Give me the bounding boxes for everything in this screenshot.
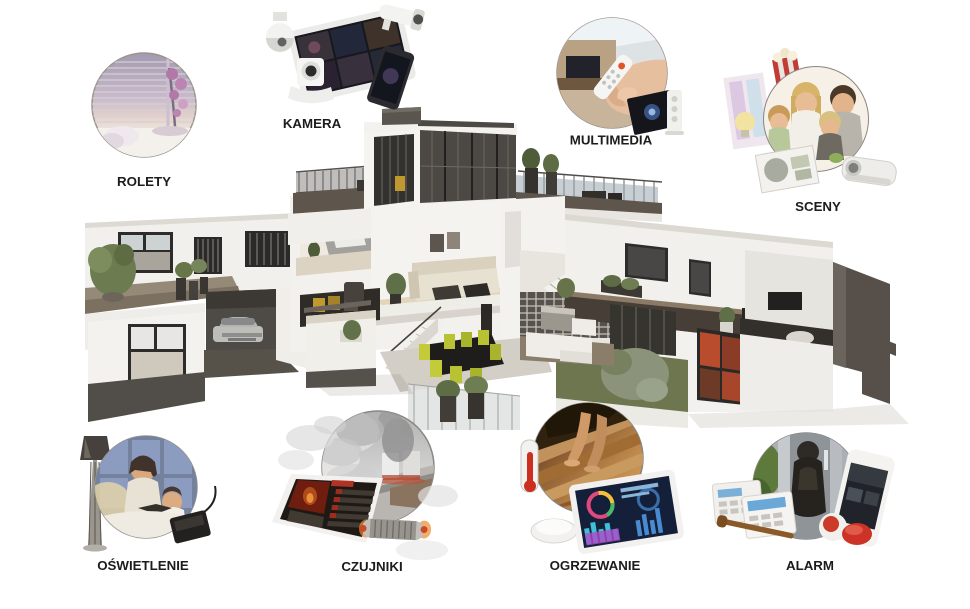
svg-text:ALARM: ALARM (786, 558, 834, 573)
svg-text:MULTIMEDIA: MULTIMEDIA (570, 133, 653, 148)
svg-text:SCENY: SCENY (795, 199, 841, 214)
svg-text:ROLETY: ROLETY (117, 174, 171, 189)
svg-text:KAMERA: KAMERA (283, 116, 342, 131)
svg-text:OŚWIETLENIE: OŚWIETLENIE (97, 558, 189, 573)
svg-text:OGRZEWANIE: OGRZEWANIE (550, 558, 641, 573)
svg-text:CZUJNIKI: CZUJNIKI (341, 559, 402, 574)
